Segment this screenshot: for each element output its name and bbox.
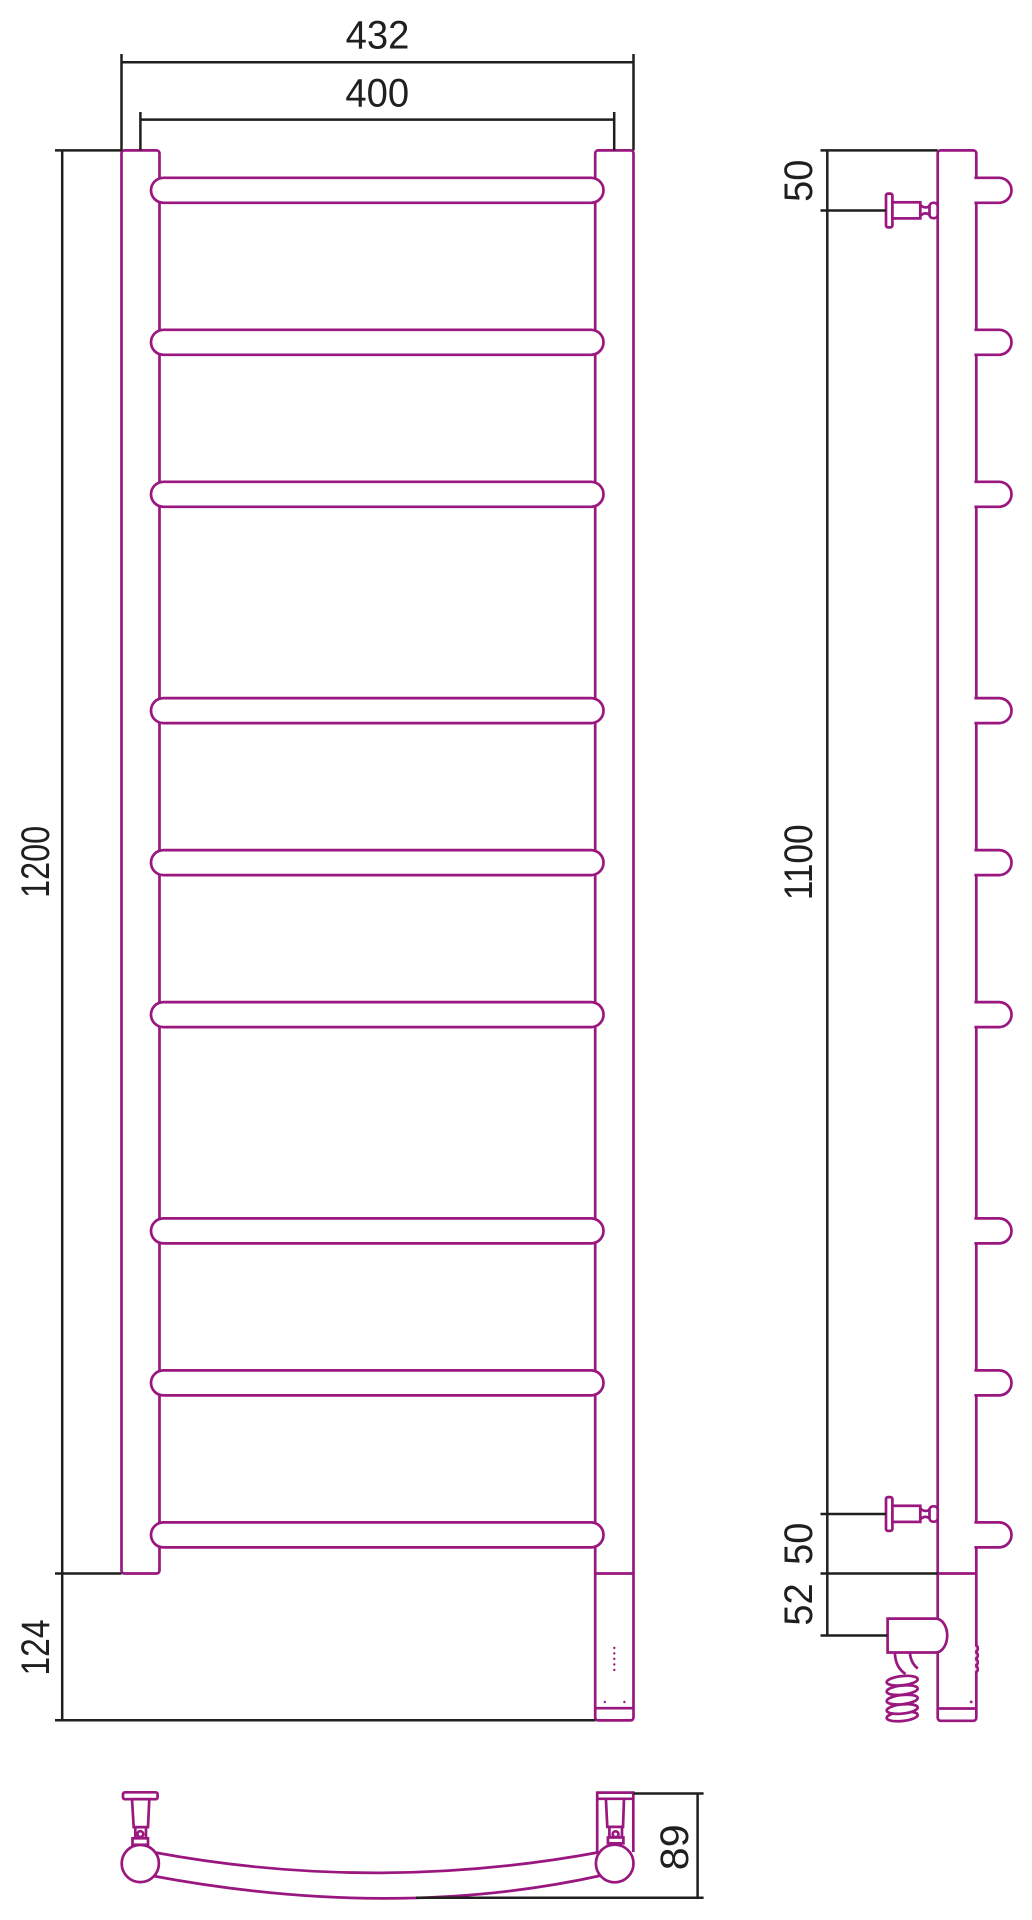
svg-text:1100: 1100: [776, 824, 821, 900]
svg-text:50: 50: [777, 160, 821, 202]
svg-text:1200: 1200: [13, 826, 58, 898]
svg-text:89: 89: [652, 1824, 697, 1870]
svg-text:432: 432: [346, 14, 410, 58]
svg-text:400: 400: [345, 72, 409, 116]
svg-text:52: 52: [777, 1583, 821, 1625]
svg-text:50: 50: [777, 1523, 821, 1565]
svg-text:124: 124: [13, 1619, 57, 1675]
